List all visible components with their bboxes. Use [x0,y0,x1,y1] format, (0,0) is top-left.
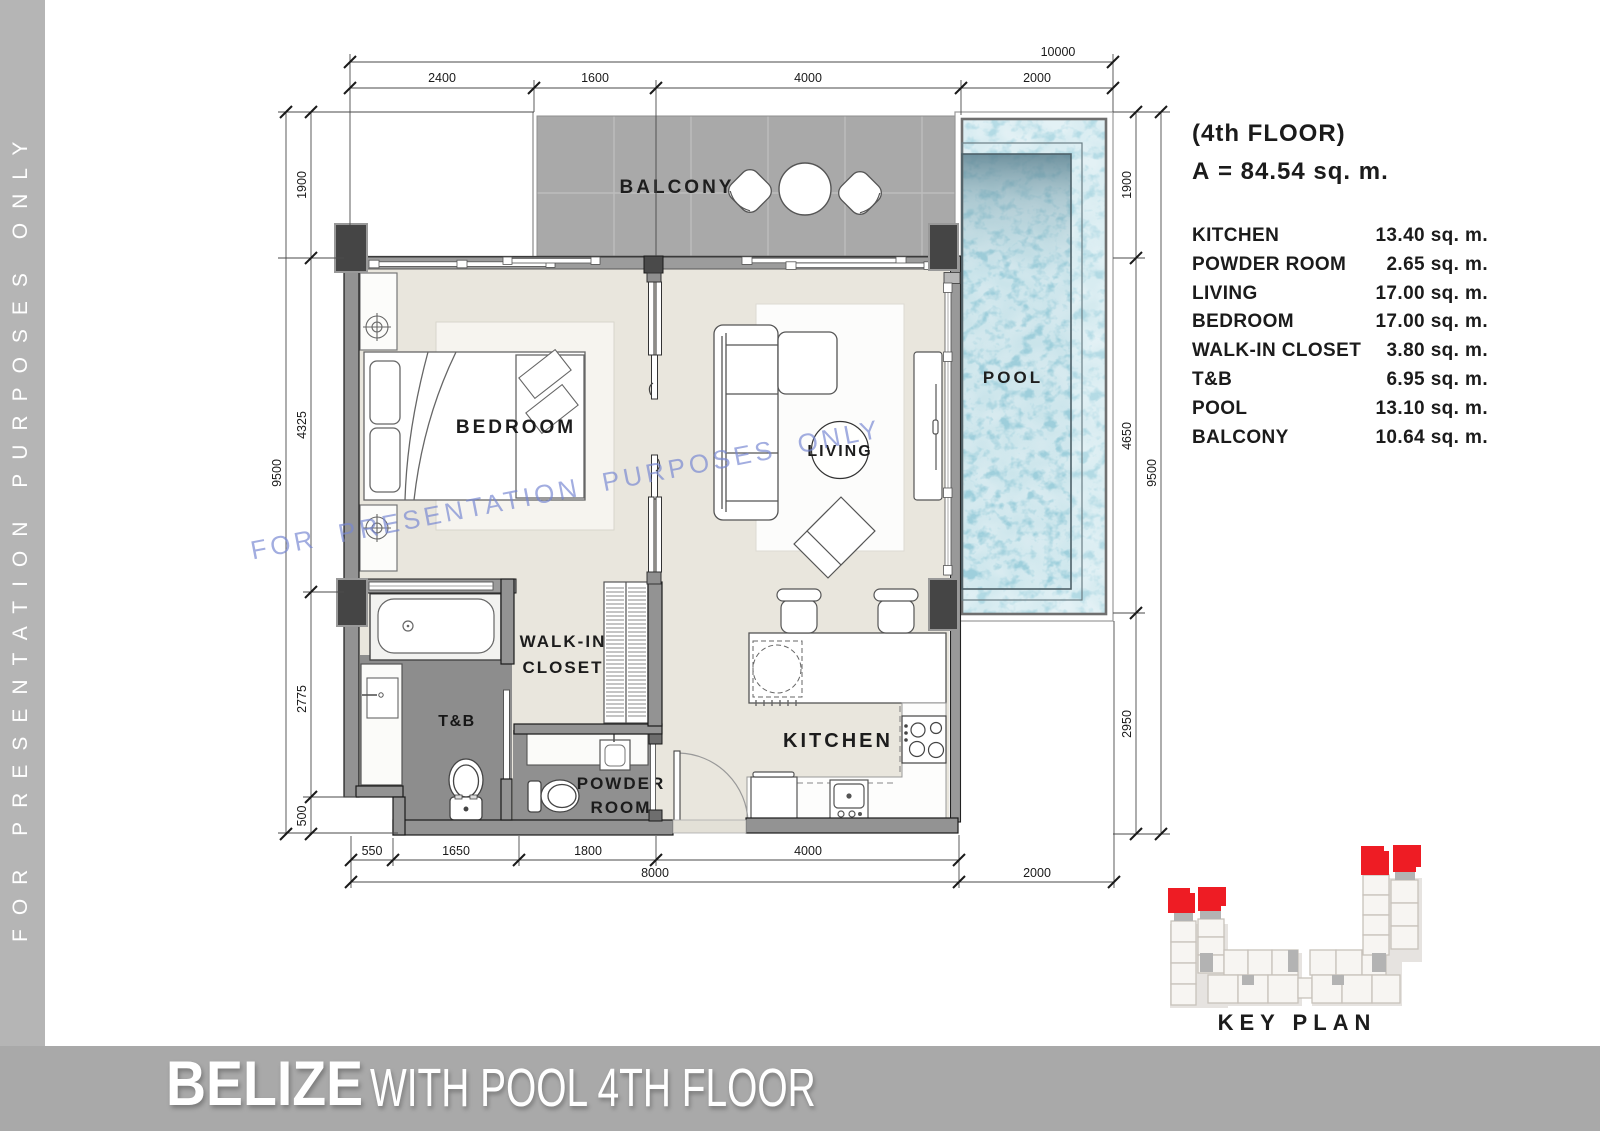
svg-text:2775: 2775 [295,685,309,713]
svg-text:4000: 4000 [794,844,822,858]
svg-text:KEY PLAN: KEY PLAN [1218,1010,1377,1035]
svg-text:POOL: POOL [983,368,1043,387]
svg-text:1650: 1650 [442,844,470,858]
svg-text:T&B: T&B [438,713,475,730]
svg-text:1800: 1800 [574,844,602,858]
svg-text:BEDROOM: BEDROOM [456,417,576,438]
svg-text:2000: 2000 [1023,71,1051,85]
svg-text:CLOSET: CLOSET [523,658,604,677]
svg-text:BALCONY: BALCONY [620,177,735,198]
svg-text:ROOM: ROOM [591,798,652,817]
svg-text:1900: 1900 [295,171,309,199]
svg-text:WALK-IN: WALK-IN [520,632,607,651]
svg-text:2000: 2000 [1023,866,1051,880]
svg-text:KITCHEN: KITCHEN [783,730,893,752]
svg-text:8000: 8000 [641,866,669,880]
svg-text:550: 550 [362,844,383,858]
svg-text:2400: 2400 [428,71,456,85]
svg-text:2950: 2950 [1120,710,1134,738]
svg-text:4000: 4000 [794,71,822,85]
svg-text:500: 500 [295,806,309,827]
svg-text:1900: 1900 [1120,171,1134,199]
svg-text:9500: 9500 [270,459,284,487]
svg-text:10000: 10000 [1041,45,1076,59]
svg-text:9500: 9500 [1145,459,1159,487]
svg-text:4325: 4325 [295,411,309,439]
svg-text:1600: 1600 [581,71,609,85]
svg-text:4650: 4650 [1120,422,1134,450]
